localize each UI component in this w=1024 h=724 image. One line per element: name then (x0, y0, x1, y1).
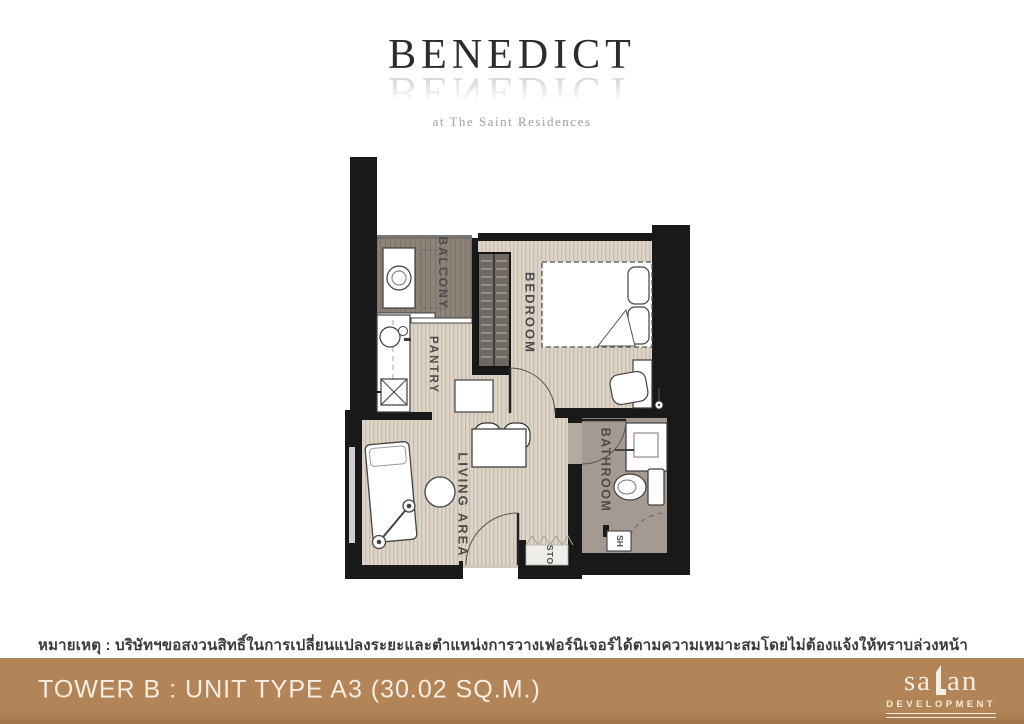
logo-text-post: an (947, 667, 978, 696)
bathroom-label: BATHROOM (599, 428, 613, 513)
developer-logo-word: sa an (886, 665, 996, 696)
bed (542, 262, 652, 347)
floor-plan: BALCONY PANTRY BEDROOM LIVING AREA BATHR… (345, 155, 705, 625)
washing-machine (383, 248, 415, 308)
hall-cabinet (455, 380, 493, 412)
pantry-label: PANTRY (427, 336, 439, 394)
shower-label: SH (615, 535, 625, 547)
wardrobe (478, 253, 510, 367)
living-window (349, 447, 355, 543)
brochure-page: BENEDICT BENEDICT at The Saint Residence… (0, 0, 1024, 724)
side-table (425, 477, 455, 507)
developer-logo-subtext: DEVELOPMENT (886, 699, 996, 710)
bedroom-label: BEDROOM (523, 272, 538, 354)
project-title-reflection: BENEDICT (0, 70, 1024, 112)
disclaimer-note: หมายเหตุ : บริษัทฯขอสงวนสิทธิ์ในการเปลี่… (38, 633, 968, 657)
balcony-label: BALCONY (436, 236, 450, 309)
project-tagline: at The Saint Residences (0, 114, 1024, 130)
logo-text-pre: sa (904, 667, 932, 696)
footer-bar: TOWER B : UNIT TYPE A3 (30.02 SQ.M.) sa … (0, 658, 1024, 724)
tower-icon (933, 665, 946, 695)
storage-label: STO (545, 545, 555, 565)
brand-header: BENEDICT BENEDICT at The Saint Residence… (0, 34, 1024, 130)
logo-underline (886, 713, 996, 718)
dining-set (472, 423, 530, 467)
living-area-label: LIVING AREA (456, 452, 471, 557)
unit-info: TOWER B : UNIT TYPE A3 (30.02 SQ.M.) (38, 675, 541, 704)
developer-logo: sa an DEVELOPMENT (886, 665, 996, 718)
